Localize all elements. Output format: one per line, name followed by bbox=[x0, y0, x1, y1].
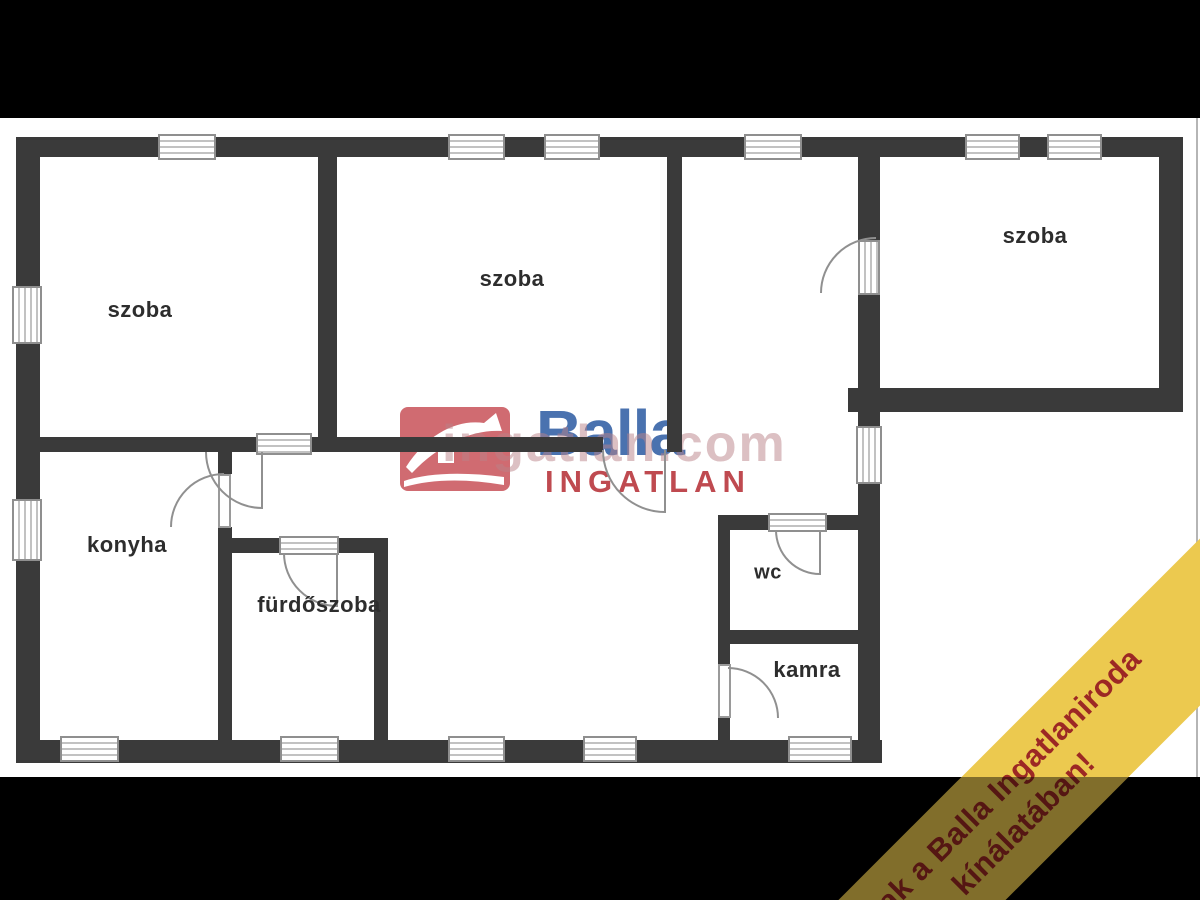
wall-segment bbox=[1159, 137, 1183, 412]
wall-segment bbox=[318, 157, 337, 452]
letterbox-top-bar bbox=[0, 0, 1200, 118]
door-threshold bbox=[768, 513, 827, 532]
door-swing-arc bbox=[776, 530, 820, 574]
wall-segment bbox=[848, 388, 1183, 412]
door-leaf bbox=[718, 664, 731, 718]
window bbox=[1047, 134, 1102, 160]
door-threshold bbox=[279, 536, 339, 555]
wall-segment bbox=[718, 630, 880, 644]
window bbox=[60, 736, 119, 762]
room-label-szoba-3: szoba bbox=[1003, 223, 1068, 249]
door-threshold bbox=[858, 240, 880, 295]
plan-right-edge-line bbox=[1196, 118, 1198, 777]
door-threshold bbox=[256, 433, 312, 455]
wall-segment bbox=[374, 538, 388, 763]
room-label-kamra: kamra bbox=[773, 657, 840, 683]
window bbox=[788, 736, 852, 762]
wall-segment bbox=[858, 157, 880, 240]
floor-plan-image: ingatlan.com Balla INGATLAN szobaszobasz… bbox=[0, 0, 1200, 900]
letterbox-bottom-bar bbox=[0, 777, 1200, 900]
wall-segment bbox=[718, 718, 730, 743]
window bbox=[12, 286, 42, 344]
room-label-wc: wc bbox=[754, 562, 782, 585]
window bbox=[448, 736, 505, 762]
window bbox=[583, 736, 637, 762]
wall-segment bbox=[310, 437, 603, 452]
window bbox=[965, 134, 1020, 160]
room-label-szoba-1: szoba bbox=[108, 297, 173, 323]
window bbox=[856, 426, 882, 484]
door-leaf bbox=[218, 474, 231, 528]
window bbox=[448, 134, 505, 160]
room-label-szoba-2: szoba bbox=[480, 266, 545, 292]
door-swing-arc bbox=[728, 668, 778, 718]
room-label-konyha: konyha bbox=[87, 532, 167, 558]
wall-segment bbox=[218, 448, 232, 474]
door-swing-arc bbox=[171, 474, 224, 527]
wall-segment bbox=[825, 515, 880, 530]
wall-segment bbox=[858, 295, 880, 426]
window bbox=[12, 499, 42, 561]
room-label-furdoszoba: fürdőszoba bbox=[257, 592, 381, 618]
wall-segment bbox=[667, 157, 682, 452]
window bbox=[158, 134, 216, 160]
window bbox=[744, 134, 802, 160]
wall-segment bbox=[218, 538, 283, 553]
wall-segment bbox=[218, 527, 232, 763]
window bbox=[280, 736, 339, 762]
door-swing-arc bbox=[206, 452, 262, 508]
window bbox=[544, 134, 600, 160]
